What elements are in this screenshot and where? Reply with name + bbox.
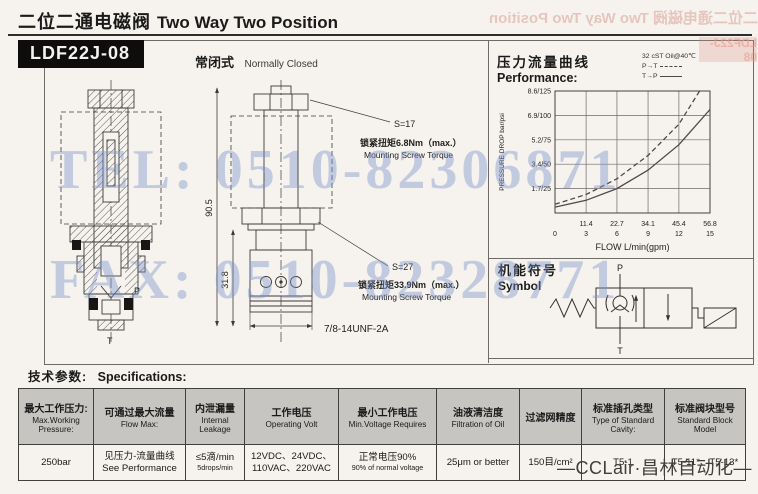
torque1-zh: 锁紧扭矩6.8Nm（max.） — [360, 137, 462, 148]
torque2-zh: 锁紧扭矩33.9Nm（max.） — [358, 279, 465, 290]
ghost-mirrored-title: 二位二通电磁阀 Two Way Two Position — [489, 7, 758, 28]
spec-col-header: 可通过最大流量Flow Max: — [94, 389, 186, 445]
y-tick-label: 8.6/125 — [528, 89, 551, 96]
spec-value-line: 12VDC、24VDC、 — [246, 451, 337, 463]
performance-heading: 压力流量曲线 Performance: — [497, 55, 590, 85]
solid-line-sample — [660, 76, 682, 77]
x-origin-label: 0 — [553, 231, 557, 238]
spec-col-header-zh: 最大工作压力: — [20, 400, 92, 415]
specs-heading-en: Specifications: — [98, 370, 187, 384]
x-tick-label-lmin: 22.7 — [610, 221, 624, 228]
x-tick-label-lmin: 56.8 — [703, 221, 717, 228]
y-axis-title: PRESSURE DROP bar/psi — [499, 113, 506, 191]
series-dashed — [555, 91, 700, 204]
spec-value-line: 90% of normal voltage — [340, 464, 435, 473]
x-tick-label-lmin: 11.4 — [580, 221, 593, 228]
spec-col-header: 标准阀块型号Standard Block Model — [665, 389, 746, 445]
valve-technical-drawings: P T 90.5 31.8 S=17 — [44, 42, 488, 363]
specs-heading-zh: 技术参数: — [28, 370, 87, 384]
spec-value-line: 110VAC、220VAC — [246, 463, 337, 475]
spec-col-header-en: Internal Leakage — [187, 416, 243, 434]
spec-value-cell: 见压力-流量曲线See Performance — [94, 445, 186, 481]
symbol-port-t: T — [617, 346, 623, 356]
spec-col-header-zh: 可通过最大流量 — [95, 404, 184, 419]
x-tick-label-gpm: 3 — [584, 231, 588, 238]
wrench-size-s27: S=27 — [392, 262, 413, 272]
spec-col-header-zh: 最小工作电压 — [340, 404, 435, 419]
spec-col-header-en: Flow Max: — [95, 420, 184, 429]
spec-col-header-zh: 标准阀块型号 — [666, 400, 744, 415]
x-tick-label-gpm: 6 — [615, 231, 619, 238]
torque1-en: Mounting Screw Torque — [364, 150, 453, 160]
title-divider — [8, 34, 752, 36]
spec-col-header: 最大工作压力:Max.Working Pressure: — [19, 389, 94, 445]
spec-col-header: 内泄漏量Internal Leakage — [186, 389, 245, 445]
spec-col-header: 油液清洁度Filtration of Oil — [437, 389, 520, 445]
x-tick-label-gpm: 15 — [706, 231, 714, 238]
legend-entry: T→P — [642, 72, 696, 82]
specs-heading: 技术参数: Specifications: — [28, 366, 187, 386]
spec-col-header-en: Type of Standard Cavity: — [583, 416, 663, 434]
spec-col-header-en: Min.Voltage Requires — [340, 420, 435, 429]
x-axis-title: FLOW L/min(gpm) — [595, 242, 669, 252]
spec-col-header-en: Operating Volt — [246, 420, 337, 429]
spec-value-line: 5drops/min — [187, 464, 243, 473]
page-title-zh: 二位二通电磁阀 — [18, 12, 151, 32]
plot-border — [555, 91, 710, 213]
x-tick-label-gpm: 12 — [675, 231, 683, 238]
wrench-size-s17: S=17 — [394, 119, 415, 129]
spec-value-line: 25μm or better — [438, 457, 518, 469]
x-tick-label-lmin: 45.4 — [672, 221, 686, 228]
spec-col-header: 最小工作电压Min.Voltage Requires — [339, 389, 437, 445]
port-t-label: T — [107, 336, 113, 346]
performance-heading-en: Performance: — [497, 71, 590, 85]
spec-col-header-zh: 内泄漏量 — [187, 400, 243, 415]
spec-value-cell: 25μm or better — [437, 445, 520, 481]
page-title: 二位二通电磁阀 Two Way Two Position — [18, 8, 338, 34]
spec-value-cell: ≤5滴/min5drops/min — [186, 445, 245, 481]
valve-outline-drawing — [217, 80, 390, 344]
page-title-en: Two Way Two Position — [157, 13, 338, 32]
dashed-line-sample — [660, 66, 682, 67]
brand-footer: —CCLair·昌林自动化— — [557, 454, 752, 480]
spec-col-header-en: Max.Working Pressure: — [20, 416, 92, 434]
spec-col-header: 标准插孔类型Type of Standard Cavity: — [582, 389, 665, 445]
legend-note: 32 cST Oil@40℃ — [642, 52, 696, 62]
dimension-lower-height: 31.8 — [220, 271, 230, 289]
performance-chart: 8.6/1256.9/1005.2/753.4/501.7/2511.422.7… — [492, 86, 750, 258]
model-number-tag: LDF22J-08 — [18, 40, 144, 68]
thread-spec: 7/8-14UNF-2A — [324, 324, 389, 335]
spec-col-header-zh: 过滤网精度 — [521, 409, 580, 424]
datasheet-page: 二位二通电磁阀 Two Way Two Position 二位二通电磁阀 Two… — [0, 0, 758, 494]
torque2-en: Mounting Screw Torque — [362, 292, 451, 302]
y-tick-label: 1.7/25 — [532, 186, 552, 193]
spec-value-cell: 12VDC、24VDC、110VAC、220VAC — [245, 445, 339, 481]
series-solid — [555, 110, 710, 208]
y-tick-label: 5.2/75 — [532, 137, 552, 144]
x-tick-label-lmin: 34.1 — [641, 221, 655, 228]
symbol-port-p: P — [617, 263, 623, 273]
dimension-total-height: 90.5 — [204, 199, 214, 217]
spec-col-header: 工作电压Operating Volt — [245, 389, 339, 445]
spec-value-cell: 正常电压90%90% of normal voltage — [339, 445, 437, 481]
spec-value-line: 见压力-流量曲线 — [95, 451, 184, 463]
performance-heading-zh: 压力流量曲线 — [497, 55, 590, 71]
hydraulic-symbol: P T — [488, 258, 752, 357]
legend-entry: P→T — [642, 62, 696, 72]
specs-header-row: 最大工作压力:Max.Working Pressure:可通过最大流量Flow … — [19, 389, 746, 445]
spec-col-header-en: Filtration of Oil — [438, 420, 518, 429]
spec-col-header-zh: 标准插孔类型 — [583, 400, 663, 415]
x-tick-label-gpm: 9 — [646, 231, 650, 238]
spec-value-line: See Performance — [95, 463, 184, 475]
spec-col-header-zh: 工作电压 — [246, 404, 337, 419]
spec-col-header: 过滤网精度 — [520, 389, 582, 445]
port-p-label: P — [134, 286, 140, 296]
valve-section-drawing — [61, 80, 161, 344]
spec-col-header-en: Standard Block Model — [666, 416, 744, 434]
spec-value-line: 250bar — [20, 457, 92, 469]
spec-col-header-zh: 油液清洁度 — [438, 404, 518, 419]
y-tick-label: 3.4/50 — [532, 162, 552, 169]
spec-value-cell: 250bar — [19, 445, 94, 481]
y-tick-label: 6.9/100 — [528, 113, 551, 120]
chart-legend: 32 cST Oil@40℃ P→T T→P — [642, 52, 696, 82]
